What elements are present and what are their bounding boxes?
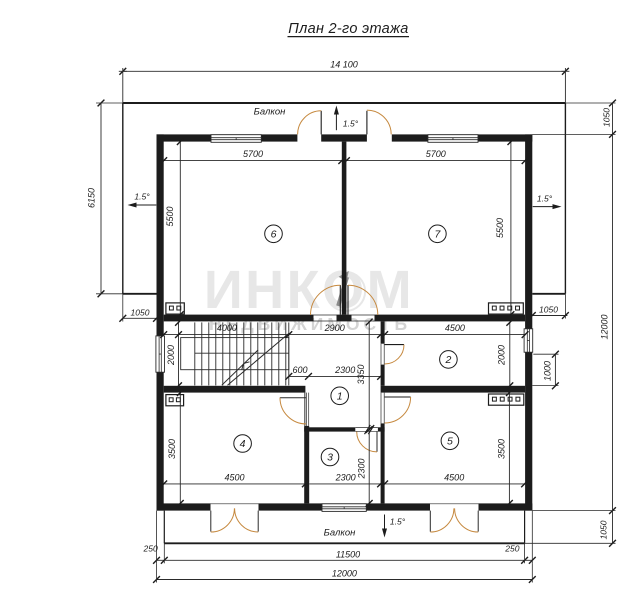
svg-text:5700: 5700	[426, 149, 446, 159]
svg-text:Балкон: Балкон	[324, 528, 356, 539]
svg-text:2000: 2000	[497, 345, 507, 366]
svg-text:4500: 4500	[224, 473, 244, 483]
svg-text:3500: 3500	[167, 439, 177, 459]
svg-text:3500: 3500	[496, 439, 506, 459]
svg-text:2000: 2000	[166, 345, 176, 366]
svg-text:1050: 1050	[602, 108, 612, 127]
svg-text:3350: 3350	[356, 364, 366, 384]
svg-text:ИНКОМ: ИНКОМ	[204, 260, 414, 320]
svg-text:5: 5	[447, 435, 453, 447]
svg-text:250: 250	[143, 544, 158, 554]
svg-text:4: 4	[240, 438, 246, 450]
svg-text:2300: 2300	[335, 473, 356, 483]
svg-text:5700: 5700	[243, 149, 263, 159]
svg-text:11500: 11500	[336, 549, 360, 559]
svg-text:250: 250	[504, 544, 519, 554]
svg-text:6: 6	[271, 228, 277, 240]
svg-text:1050: 1050	[539, 305, 558, 315]
svg-text:600: 600	[292, 365, 307, 375]
svg-text:1050: 1050	[599, 520, 609, 539]
svg-text:2900: 2900	[324, 323, 345, 333]
svg-text:1050: 1050	[131, 307, 150, 317]
svg-text:1: 1	[337, 390, 343, 402]
svg-text:1.5°: 1.5°	[343, 119, 359, 129]
svg-text:4500: 4500	[444, 473, 464, 483]
svg-text:1.5°: 1.5°	[134, 192, 150, 202]
svg-text:Балкон: Балкон	[254, 107, 286, 118]
svg-text:2300: 2300	[334, 365, 355, 375]
svg-text:4500: 4500	[445, 323, 465, 333]
svg-text:1000: 1000	[542, 361, 552, 381]
svg-text:5500: 5500	[495, 218, 505, 238]
svg-text:3: 3	[327, 452, 333, 464]
svg-text:5500: 5500	[165, 206, 175, 226]
svg-text:План 2-го этажа: План 2-го этажа	[288, 21, 408, 37]
svg-text:12000: 12000	[332, 568, 357, 578]
svg-text:2: 2	[444, 354, 451, 366]
svg-text:1.5°: 1.5°	[537, 194, 553, 204]
svg-text:12000: 12000	[600, 314, 610, 339]
svg-text:14 100: 14 100	[330, 60, 358, 70]
svg-text:1.5°: 1.5°	[390, 517, 406, 527]
svg-text:6150: 6150	[87, 188, 97, 208]
svg-text:4000: 4000	[217, 323, 237, 333]
svg-text:2300: 2300	[357, 458, 367, 479]
